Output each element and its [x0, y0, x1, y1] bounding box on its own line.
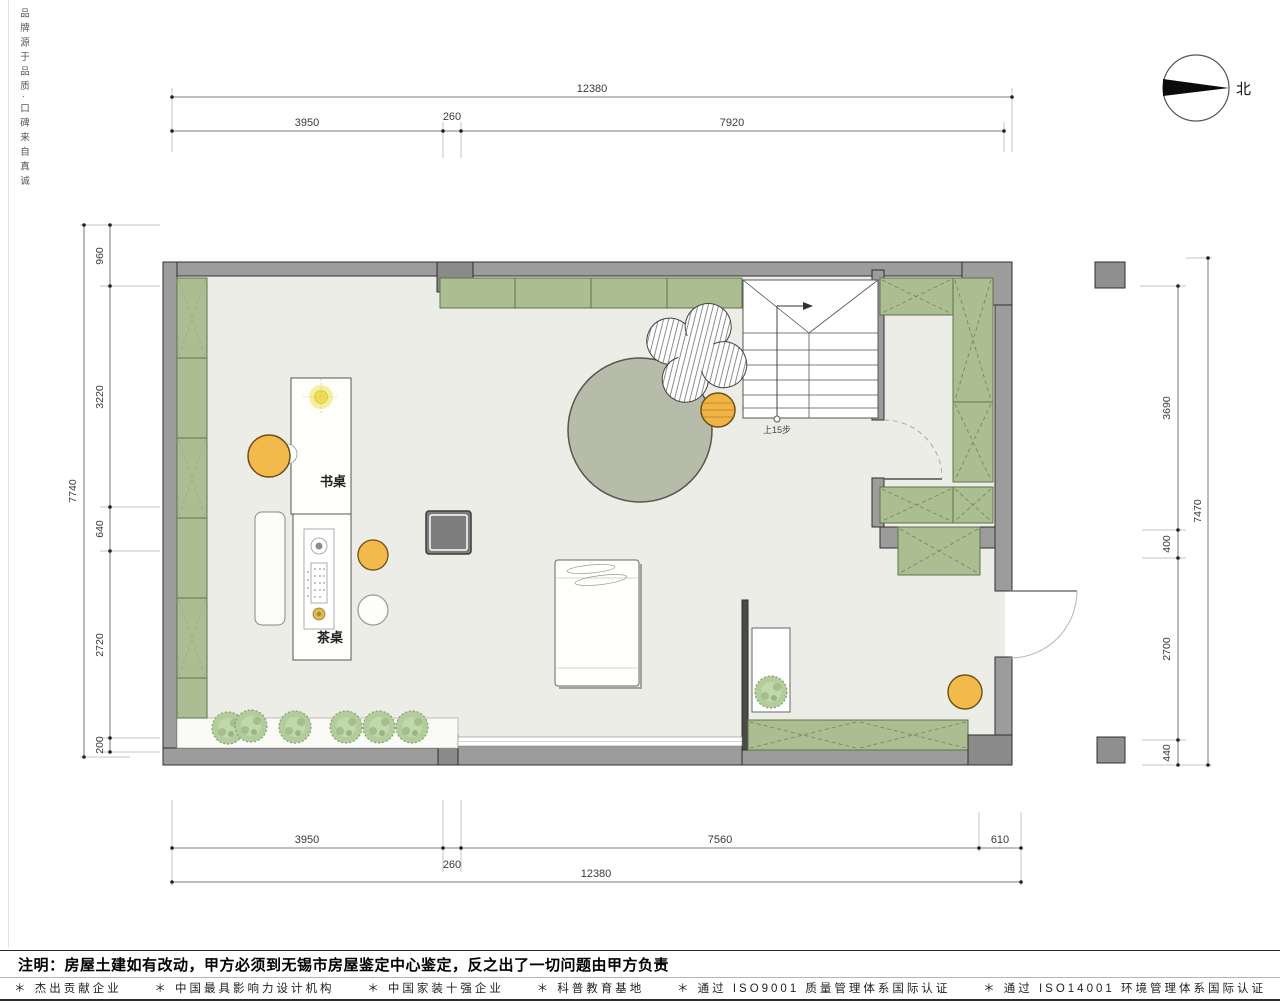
footer-credentials: ＊ 杰出贡献企业 ＊ 中国最具影响力设计机构 ＊ 中国家装十强企业 ＊ 科普教育… — [14, 980, 1266, 996]
dim-left-seg-4: 2720 — [94, 633, 106, 657]
dim-bottom-seg-4: 610 — [991, 834, 1009, 846]
wall-entry-corner-block — [968, 735, 1012, 765]
footer-item: ＊ 科普教育基地 — [537, 980, 645, 996]
desk-island: 书桌 — [291, 378, 351, 514]
gray-side-table — [426, 511, 471, 554]
dim-bottom-seg-1: 3950 — [295, 834, 319, 846]
footer-item: ＊ 中国家装十强企业 — [367, 980, 504, 996]
divider-top — [0, 950, 1280, 951]
dim-left-seg-1: 960 — [94, 247, 106, 265]
cabinet-left-4 — [177, 518, 207, 598]
footer-item: ＊ 杰出贡献企业 — [14, 980, 122, 996]
divider-bottom — [0, 999, 1280, 1001]
wall-bottom-middle — [458, 745, 742, 765]
dim-left: 7740 960 3220 640 2720 200 — [67, 223, 160, 759]
wall-bottom-left — [163, 748, 458, 765]
floorplan-canvas: 北 — [0, 0, 1280, 1005]
stairs: 上15步 — [743, 280, 878, 435]
dim-top-seg-3: 7920 — [720, 117, 744, 129]
dim-bottom-overall: 12380 — [581, 868, 612, 880]
dim-right-seg-1: 3690 — [1161, 396, 1173, 420]
wall-stub-right — [980, 527, 995, 548]
dim-bottom-seg-3: 7560 — [708, 834, 732, 846]
entry-cabinet-bottom — [748, 720, 968, 750]
niche-shelf — [752, 628, 790, 712]
bed — [555, 560, 641, 688]
cabinet-left-1 — [177, 278, 207, 358]
cabinet-left-2 — [177, 358, 207, 438]
entrance-door — [1010, 591, 1077, 658]
dim-right-seg-4: 440 — [1161, 744, 1173, 762]
wall-right-upper — [995, 262, 1012, 591]
floor-plan: 上15步 — [163, 262, 1077, 765]
dim-right: 3690 400 2700 440 7470 — [1140, 256, 1212, 767]
dim-top-overall: 12380 — [577, 83, 608, 95]
construction-note: 注明：房屋土建如有改动，甲方必须到无锡市房屋鉴定中心鉴定，反之出了一切问题由甲方… — [18, 954, 669, 975]
footer-item: ＊ 通过 ISO14001 环境管理体系国际认证 — [983, 980, 1266, 996]
dim-left-seg-5: 200 — [94, 736, 106, 754]
dim-top-seg-1: 3950 — [295, 117, 319, 129]
tea-table: 茶桌 — [293, 514, 351, 660]
dim-top-seg-2: 260 — [443, 111, 461, 123]
dim-right-seg-3: 2700 — [1161, 637, 1173, 661]
wall-left — [163, 262, 177, 765]
outside-columns — [1095, 262, 1125, 763]
dim-left-seg-3: 640 — [94, 520, 106, 538]
left-margin-line — [8, 0, 9, 948]
footer-item: ＊ 中国最具影响力设计机构 — [154, 980, 334, 996]
footer-item: ＊ 通过 ISO9001 质量管理体系国际认证 — [677, 980, 950, 996]
cabinet-left-6 — [177, 678, 207, 718]
stairs-note-label: 上15步 — [763, 425, 791, 435]
floorplan-page: 品牌源于品质·口碑来自真诚 北 — [0, 0, 1280, 1005]
white-stool — [358, 595, 388, 625]
yellow-stool — [358, 540, 388, 570]
dim-right-overall: 7470 — [1192, 499, 1204, 523]
tea-table-label: 茶桌 — [317, 630, 344, 645]
cabinet-top-2 — [515, 278, 591, 308]
niche-plant-icon — [755, 676, 787, 708]
closet-wardrobe-1 — [953, 278, 993, 402]
wall-top — [163, 262, 1012, 276]
dim-bottom-seg-2: 260 — [443, 859, 461, 871]
dim-bottom: 3950 260 7560 610 12380 — [170, 800, 1023, 886]
entry-yellow-stool — [948, 675, 982, 709]
column-outside-top — [1095, 262, 1125, 288]
wall-stub-left — [880, 527, 898, 548]
bench — [255, 512, 285, 625]
compass: 北 — [1163, 55, 1251, 121]
dim-right-seg-2: 400 — [1161, 535, 1173, 553]
brand-side-text: 品牌源于品质·口碑来自真诚 — [16, 8, 30, 190]
cabinet-top-1 — [440, 278, 515, 308]
cabinet-left-3 — [177, 438, 207, 518]
divider-middle — [0, 977, 1280, 978]
partition-wall — [742, 600, 748, 750]
window-strip — [458, 737, 742, 746]
dim-left-seg-2: 3220 — [94, 385, 106, 409]
dim-top: 12380 3950 260 7920 — [170, 83, 1014, 158]
north-label: 北 — [1236, 81, 1251, 98]
tea-set-icon — [304, 529, 334, 629]
cabinet-top-3 — [591, 278, 667, 308]
dim-left-overall: 7740 — [67, 479, 79, 503]
cabinet-left-5 — [177, 598, 207, 678]
ottoman — [701, 393, 735, 427]
column-outside-bottom — [1097, 737, 1125, 763]
desk-label: 书桌 — [320, 474, 347, 489]
